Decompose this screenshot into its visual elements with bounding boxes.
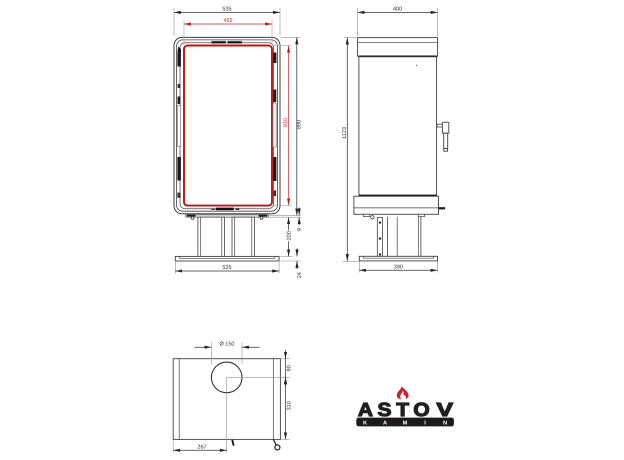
svg-text:200: 200 xyxy=(287,231,293,240)
svg-text:Ø 150: Ø 150 xyxy=(220,341,235,347)
svg-text:890: 890 xyxy=(297,120,303,129)
svg-text:A: A xyxy=(383,421,387,427)
svg-text:455: 455 xyxy=(224,18,233,24)
svg-text:810: 810 xyxy=(283,118,289,127)
svg-text:90: 90 xyxy=(286,365,292,371)
svg-text:525: 525 xyxy=(222,265,231,271)
svg-text:N: N xyxy=(443,421,447,427)
svg-text:390: 390 xyxy=(394,265,403,271)
svg-text:535: 535 xyxy=(222,7,231,13)
svg-text:400: 400 xyxy=(393,7,402,13)
svg-text:24: 24 xyxy=(297,272,303,278)
svg-text:M: M xyxy=(403,421,408,427)
svg-text:9: 9 xyxy=(297,228,303,231)
svg-text:310: 310 xyxy=(286,401,292,410)
svg-text:1123: 1123 xyxy=(342,127,348,139)
svg-text:267: 267 xyxy=(197,445,206,451)
